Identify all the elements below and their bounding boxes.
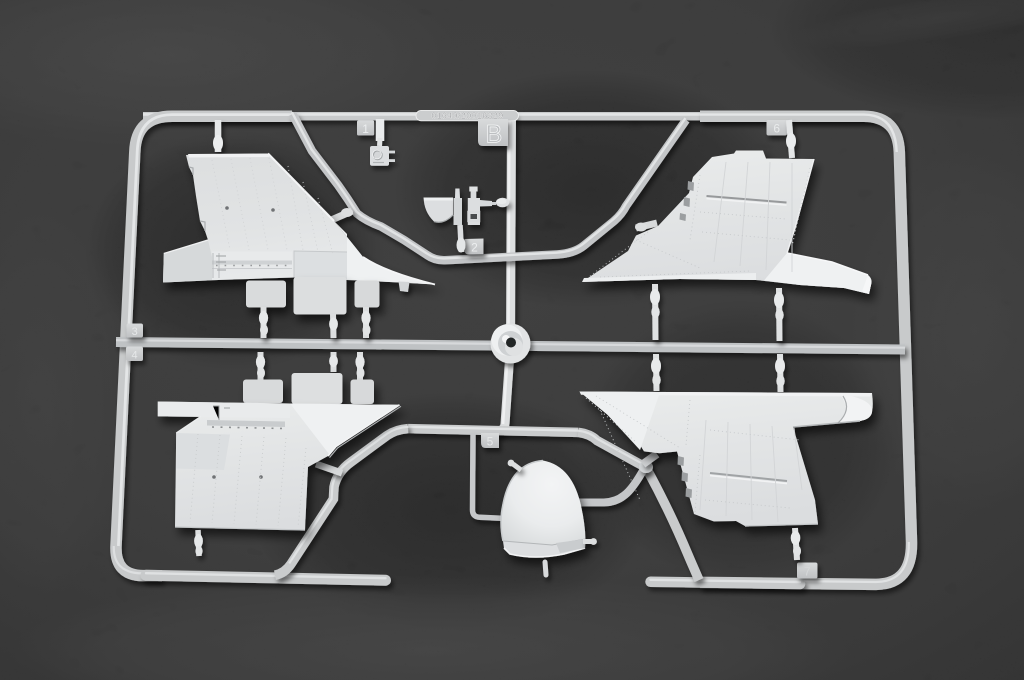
svg-text:5: 5 bbox=[487, 434, 494, 448]
svg-text:1: 1 bbox=[362, 122, 369, 136]
svg-text:7: 7 bbox=[804, 565, 811, 579]
svg-text:2: 2 bbox=[471, 241, 478, 255]
svg-text:3: 3 bbox=[132, 326, 138, 338]
svg-text:B: B bbox=[486, 121, 503, 149]
svg-text:6: 6 bbox=[773, 122, 780, 136]
svg-text:4: 4 bbox=[131, 349, 137, 361]
svg-text:01640/20016329: 01640/20016329 bbox=[431, 110, 503, 120]
